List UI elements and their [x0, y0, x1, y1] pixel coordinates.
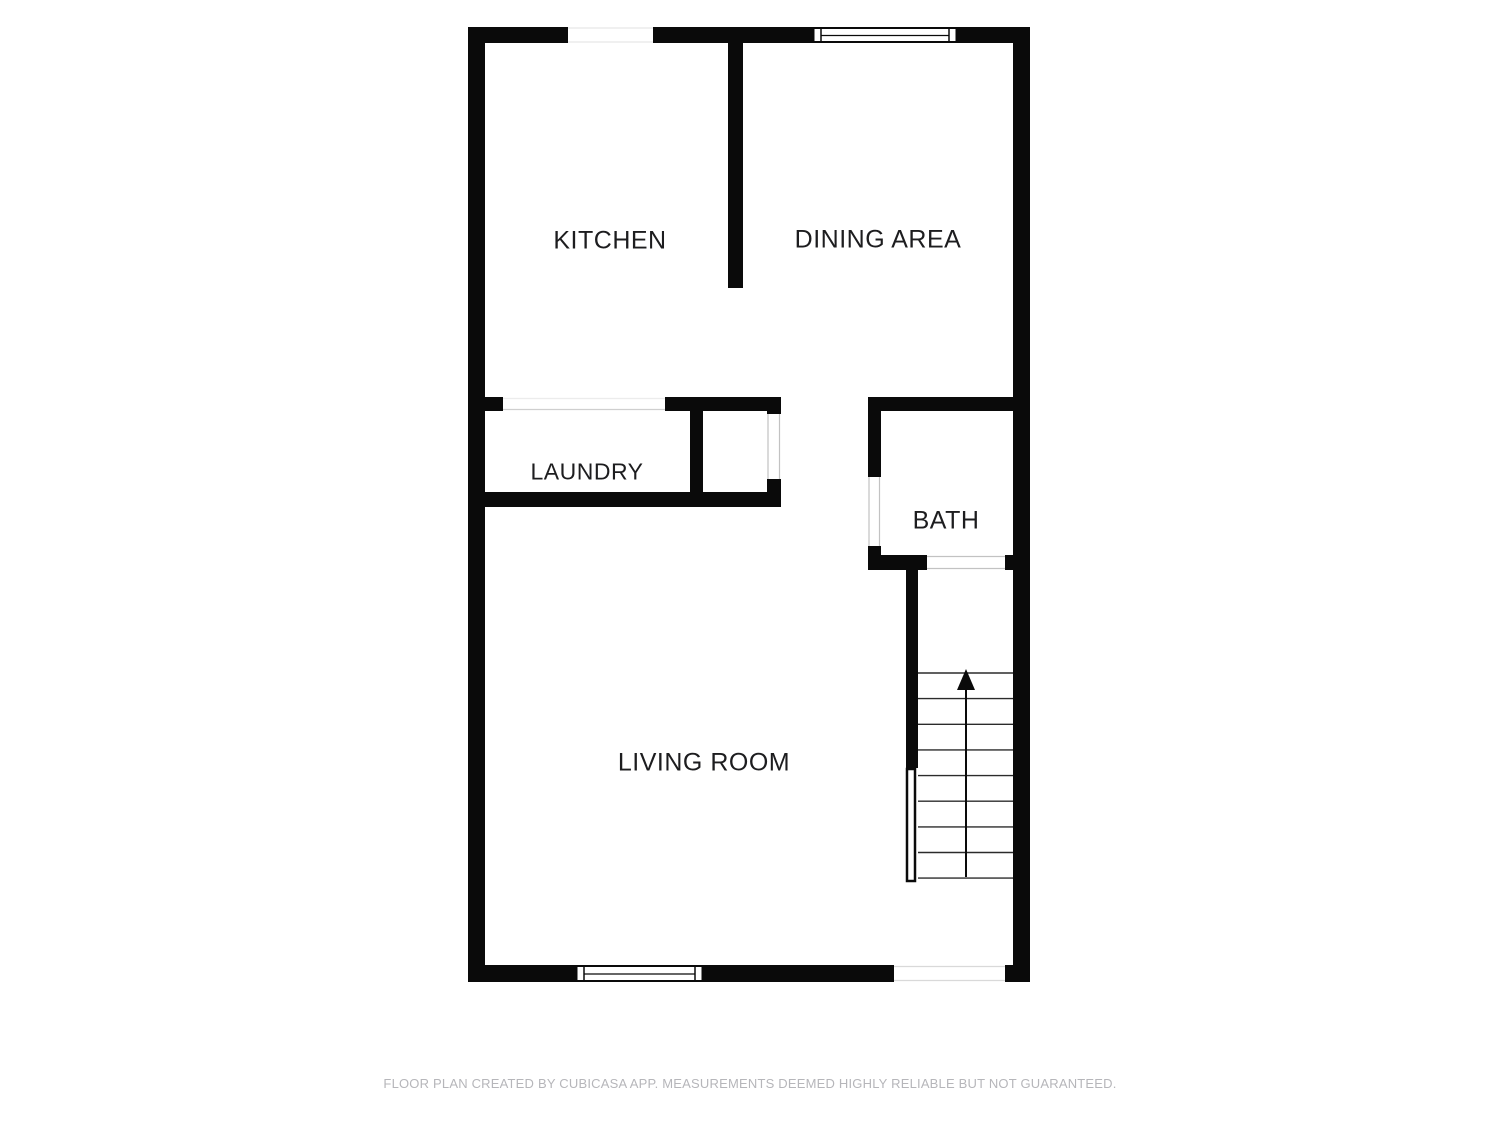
wall-laundry-closet-divider	[690, 405, 703, 495]
footer-disclaimer: FLOOR PLAN CREATED BY CUBICASA APP. MEAS…	[383, 1076, 1116, 1091]
wall-laundry-bottom	[468, 492, 780, 507]
wall-bottom-segment-right	[1005, 965, 1030, 982]
wall-top-segment-left	[468, 27, 568, 43]
wall-stairs-left	[906, 557, 918, 768]
wall-bath-door-cap	[1005, 555, 1013, 570]
interior-walls	[468, 43, 1013, 768]
wall-bath-left-upper	[868, 411, 881, 477]
wall-closet-right-cap-bottom	[767, 479, 781, 507]
wall-top-segment-mid	[653, 27, 813, 43]
wall-kitchen-dining-divider	[728, 43, 743, 288]
room-label-bath: BATH	[913, 507, 980, 536]
floorplan-page: KITCHEN DINING AREA LAUNDRY BATH LIVING …	[0, 0, 1500, 1125]
window-bottom	[577, 966, 703, 981]
wall-top-segment-right	[957, 27, 1030, 43]
room-label-living-room: LIVING ROOM	[618, 749, 790, 778]
stairs	[907, 669, 1013, 881]
wall-bottom-segment-mid	[703, 965, 894, 982]
window-top	[814, 28, 957, 42]
room-label-laundry: LAUNDRY	[531, 459, 644, 486]
floorplan-drawing	[0, 0, 1500, 1125]
stairs-up-arrow-icon	[957, 669, 975, 877]
wall-bath-bottom	[868, 555, 927, 570]
wall-laundry-top	[665, 397, 780, 411]
room-label-kitchen: KITCHEN	[553, 227, 666, 256]
room-label-dining-area: DINING AREA	[795, 226, 962, 255]
wall-laundry-left-stub	[485, 397, 503, 411]
wall-closet-right-cap-top	[767, 397, 781, 414]
stairs-railing	[907, 769, 915, 881]
wall-bath-top	[868, 397, 1013, 411]
wall-right	[1013, 27, 1030, 982]
wall-bottom-segment-left	[468, 965, 576, 982]
